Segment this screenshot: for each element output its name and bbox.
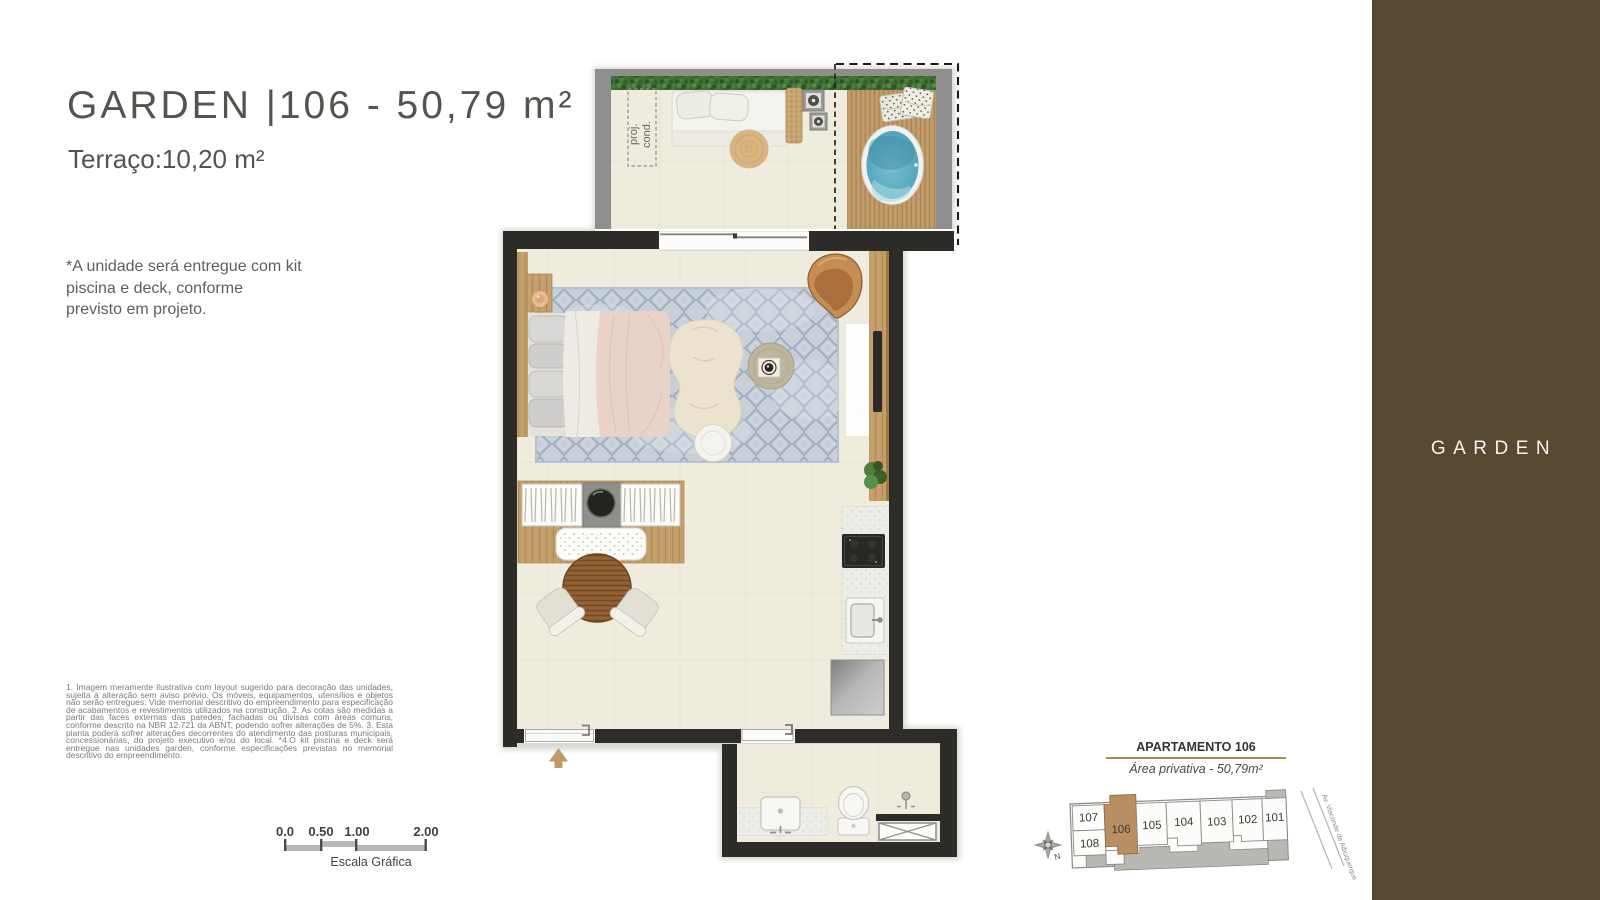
svg-text:1.00: 1.00: [344, 824, 369, 839]
svg-text:Av. Visconde de Albuquerque: Av. Visconde de Albuquerque: [1320, 793, 1358, 881]
svg-text:2.00: 2.00: [413, 824, 438, 839]
svg-text:0.0: 0.0: [276, 824, 294, 839]
svg-text:103: 103: [1207, 816, 1227, 829]
svg-text:N: N: [1053, 851, 1062, 862]
svg-text:0.50: 0.50: [308, 824, 333, 839]
svg-text:Escala Gráfica: Escala Gráfica: [330, 855, 411, 869]
svg-text:102: 102: [1238, 814, 1258, 827]
svg-text:108: 108: [1080, 838, 1100, 851]
svg-text:105: 105: [1142, 820, 1162, 833]
svg-text:107: 107: [1079, 812, 1099, 825]
svg-text:101: 101: [1265, 812, 1285, 825]
svg-text:104: 104: [1174, 816, 1194, 829]
svg-text:106: 106: [1111, 824, 1131, 837]
svg-text:proj.: proj.: [628, 124, 640, 145]
svg-text:cond.: cond.: [641, 121, 653, 148]
